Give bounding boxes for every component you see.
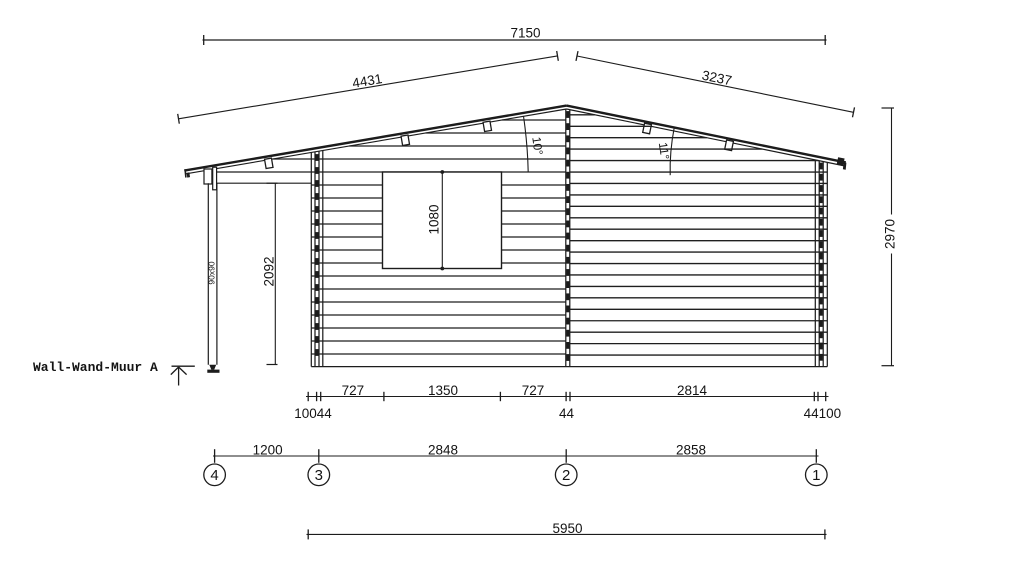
svg-text:1: 1 [812,467,820,484]
svg-text:4: 4 [210,467,218,484]
svg-text:2814: 2814 [677,383,708,398]
svg-text:10°: 10° [529,136,545,156]
svg-text:11°: 11° [656,141,672,160]
svg-text:Wall-Wand-Muur A: Wall-Wand-Muur A [33,360,158,375]
svg-text:1350: 1350 [428,383,458,398]
svg-text:3: 3 [315,467,323,484]
svg-text:2092: 2092 [261,256,276,286]
svg-text:44: 44 [559,406,575,421]
svg-text:1080: 1080 [427,204,442,234]
svg-text:2848: 2848 [428,442,458,457]
svg-text:10044: 10044 [294,406,332,421]
svg-text:7150: 7150 [510,26,540,41]
svg-text:90x90: 90x90 [207,261,217,284]
svg-text:5950: 5950 [552,521,582,536]
svg-text:727: 727 [342,383,365,398]
svg-text:2970: 2970 [883,219,898,249]
svg-text:727: 727 [522,383,545,398]
svg-text:2: 2 [562,467,570,484]
svg-text:2858: 2858 [676,442,706,457]
svg-text:1200: 1200 [253,442,283,457]
svg-text:44100: 44100 [804,406,842,421]
